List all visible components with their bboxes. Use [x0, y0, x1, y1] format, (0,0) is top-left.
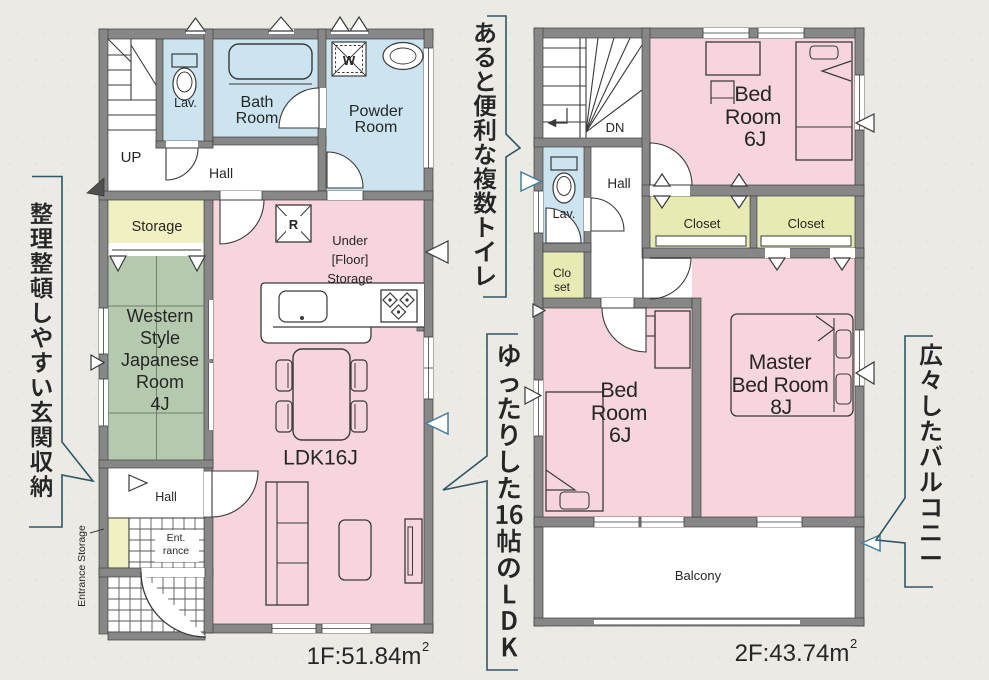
- svg-text:Room: Room: [591, 401, 647, 425]
- svg-text:Room: Room: [355, 119, 398, 136]
- svg-text:Balcony: Balcony: [675, 568, 722, 583]
- svg-text:2: 2: [850, 636, 857, 651]
- svg-text:6J: 6J: [609, 423, 631, 447]
- svg-text:Hall: Hall: [607, 176, 630, 191]
- svg-text:Storage: Storage: [132, 219, 183, 235]
- svg-text:set: set: [554, 280, 571, 294]
- svg-text:Hall: Hall: [209, 165, 233, 181]
- svg-text:UP: UP: [121, 149, 142, 166]
- svg-text:Bath: Bath: [241, 94, 274, 111]
- svg-text:Western: Western: [127, 306, 194, 326]
- svg-text:Storage: Storage: [327, 271, 373, 286]
- svg-text:8J: 8J: [770, 396, 792, 419]
- svg-text:[Floor]: [Floor]: [332, 252, 369, 267]
- svg-text:Room: Room: [725, 105, 781, 129]
- svg-text:rance: rance: [163, 545, 189, 557]
- svg-text:Ent.: Ent.: [167, 532, 186, 544]
- svg-text:Lav.: Lav.: [174, 96, 197, 110]
- svg-text:Room: Room: [236, 110, 279, 127]
- svg-text:2: 2: [422, 639, 429, 654]
- svg-text:4J: 4J: [150, 394, 169, 414]
- svg-text:Master: Master: [749, 351, 812, 374]
- svg-text:1F:51.84m: 1F:51.84m: [307, 643, 422, 670]
- svg-text:Entrance Storage: Entrance Storage: [76, 525, 88, 607]
- svg-text:Clo: Clo: [553, 266, 571, 280]
- svg-text:W: W: [343, 53, 356, 68]
- svg-text:6J: 6J: [744, 127, 766, 151]
- svg-text:Bed: Bed: [600, 378, 637, 402]
- svg-text:Closet: Closet: [788, 216, 825, 231]
- svg-text:R: R: [289, 217, 299, 232]
- svg-text:Hall: Hall: [155, 490, 177, 504]
- svg-text:Under: Under: [332, 233, 368, 248]
- svg-text:LDK16J: LDK16J: [283, 447, 358, 470]
- svg-text:Style: Style: [140, 328, 180, 348]
- svg-text:Japanese: Japanese: [121, 350, 199, 370]
- svg-text:Closet: Closet: [684, 216, 721, 231]
- svg-text:Bed Room: Bed Room: [732, 374, 829, 397]
- svg-text:2F:43.74m: 2F:43.74m: [735, 640, 850, 667]
- svg-text:Bed: Bed: [734, 82, 771, 106]
- svg-text:Room: Room: [136, 372, 184, 392]
- svg-text:DN: DN: [606, 120, 625, 135]
- svg-text:Powder: Powder: [349, 103, 404, 120]
- svg-text:Lav.: Lav.: [553, 207, 576, 221]
